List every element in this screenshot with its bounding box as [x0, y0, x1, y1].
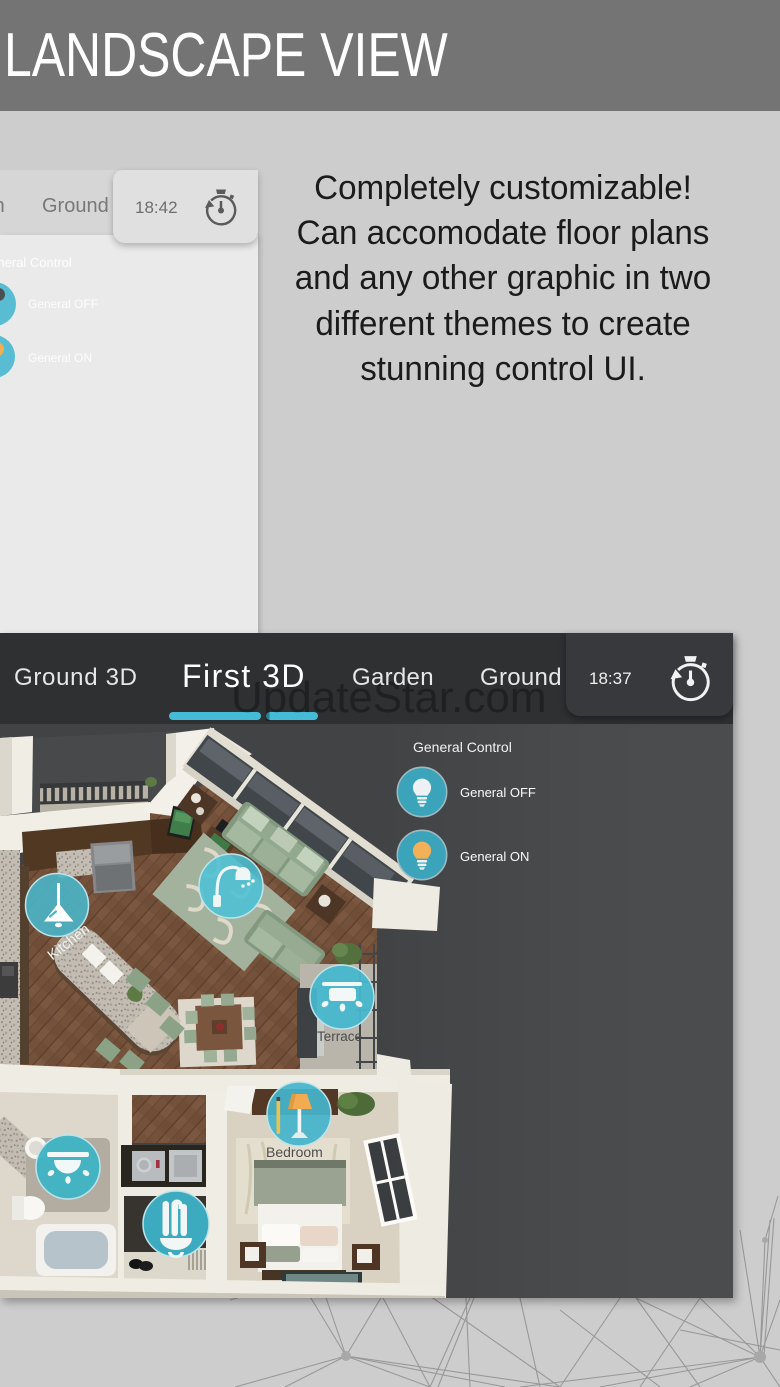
svg-text:Bedroom: Bedroom [266, 1144, 323, 1160]
svg-text:Terrace: Terrace [317, 1029, 362, 1044]
